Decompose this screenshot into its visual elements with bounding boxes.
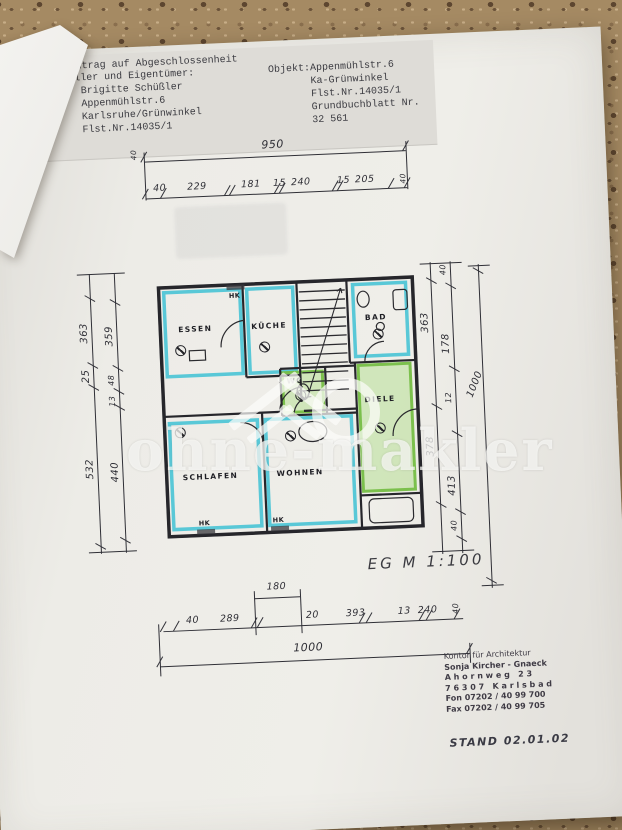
overlapping-sheet-wrap <box>0 0 622 830</box>
overlapping-sheet-corner <box>0 0 170 280</box>
photo-background: Betreff: Antrag auf Abgeschlossenheit An… <box>0 0 622 830</box>
watermark-text: ohne-makler <box>126 417 554 484</box>
